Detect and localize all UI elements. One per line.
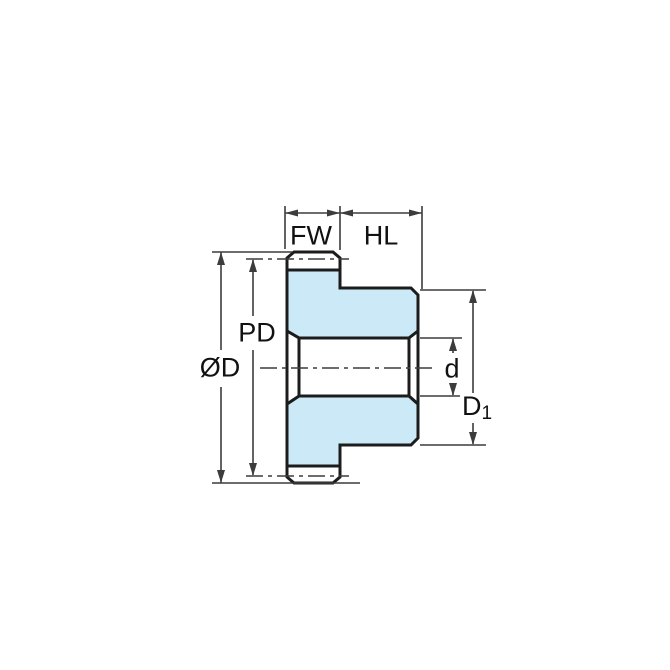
arrow-fw-left — [285, 210, 298, 217]
arrow-d1-top — [469, 290, 477, 303]
d1-dimension-label: D1 — [460, 393, 494, 423]
gear-drawing — [0, 0, 670, 670]
arrow-fw-right — [327, 210, 340, 217]
gear-body-lower — [287, 396, 418, 466]
od-dimension-label: ØD — [198, 355, 243, 382]
arrow-od-top — [217, 252, 225, 265]
pd-dimension-label: PD — [236, 320, 278, 347]
arrow-pd-bottom — [249, 463, 257, 476]
d-dimension-label: d — [442, 356, 461, 383]
tooth-bottom — [287, 466, 340, 483]
arrow-hl-right — [409, 210, 422, 217]
arrow-d-bottom — [449, 383, 457, 396]
gear-body-upper — [287, 270, 418, 338]
arrow-pd-top — [249, 259, 257, 272]
fw-dimension-label: FW — [288, 223, 334, 250]
bore-hole — [299, 338, 409, 396]
arrow-d1-bottom — [469, 432, 477, 445]
hl-dimension-label: HL — [362, 223, 401, 250]
gear-dimension-diagram: FW HL PD ØD d D1 — [0, 0, 670, 670]
d1-subscript: 1 — [481, 403, 492, 424]
arrow-od-bottom — [217, 470, 225, 483]
arrow-d-top — [449, 338, 457, 351]
tooth-top — [287, 252, 340, 270]
d1-base: D — [462, 391, 482, 421]
arrow-hl-left — [340, 210, 353, 217]
